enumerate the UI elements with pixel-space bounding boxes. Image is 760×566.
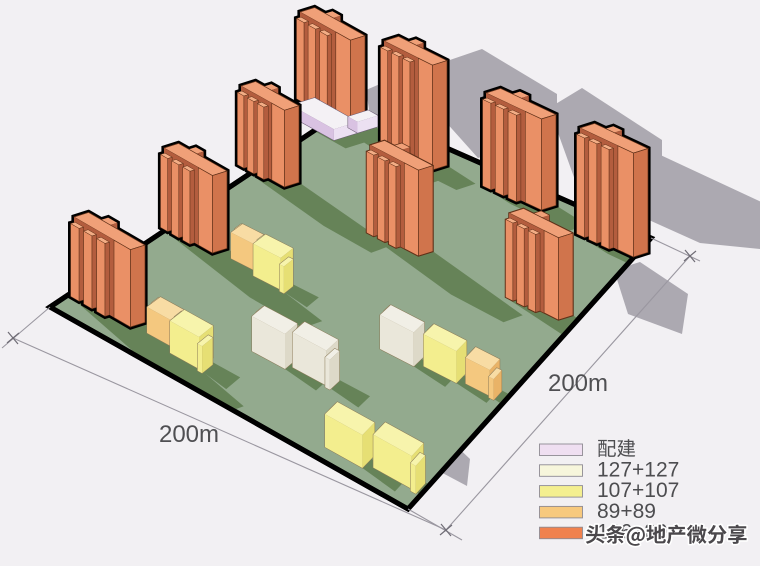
- svg-text:200m: 200m: [548, 370, 608, 397]
- svg-text:200m: 200m: [159, 421, 219, 448]
- svg-text:89+89: 89+89: [597, 500, 656, 523]
- svg-text:127+127: 127+127: [597, 458, 679, 481]
- svg-text:107+107: 107+107: [597, 479, 679, 502]
